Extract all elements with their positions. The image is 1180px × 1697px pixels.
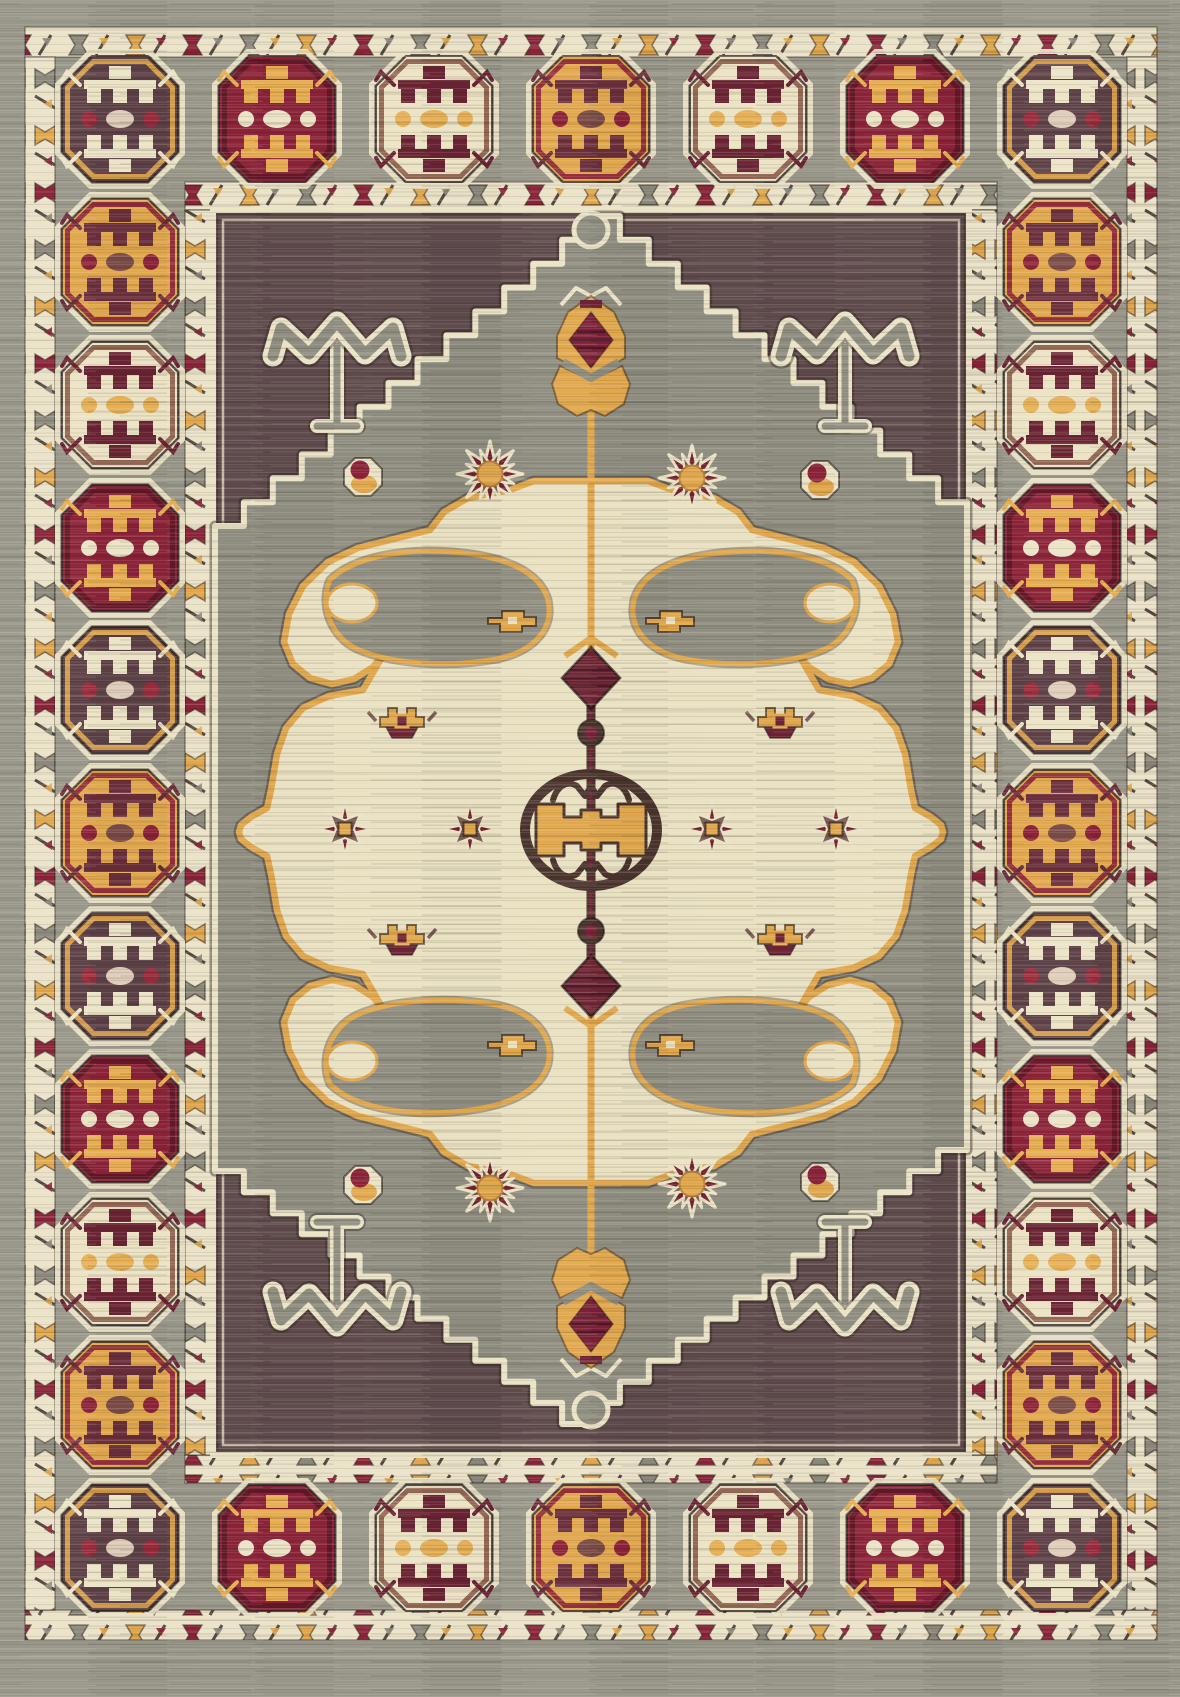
rug-artwork (0, 0, 1180, 1697)
rug-product-photo (0, 0, 1180, 1697)
weave-streaks (0, 0, 1180, 1697)
